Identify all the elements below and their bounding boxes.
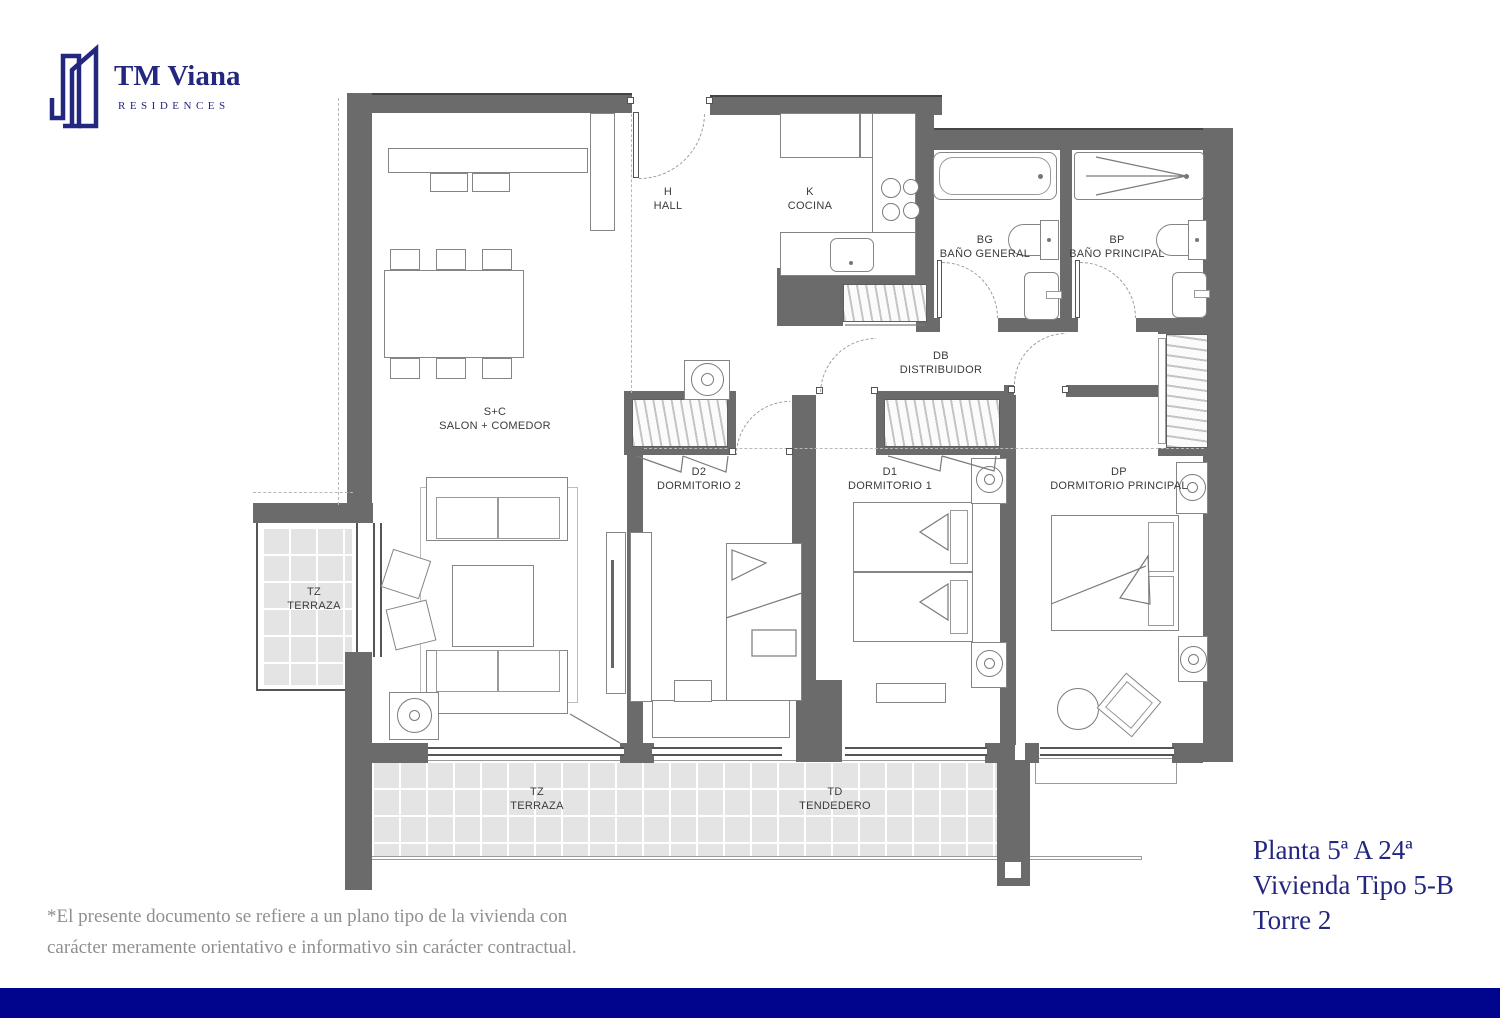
sofa-top-cushion-b xyxy=(498,497,560,539)
floor-plan-page: TM Viana RESIDENCES xyxy=(0,0,1500,1018)
room-code: BP xyxy=(1032,234,1202,248)
dining-chair xyxy=(482,358,512,379)
hall-closet xyxy=(843,284,927,322)
dp-round-table xyxy=(1057,688,1099,730)
room-code: TD xyxy=(750,786,920,800)
tall-cabinet xyxy=(590,113,615,231)
title-unit: Vivienda Tipo 5-B xyxy=(1253,868,1454,903)
bottom-right-notch xyxy=(1005,862,1021,878)
room-name: TENDEDERO xyxy=(750,800,920,814)
room-label-bano-principal: BP BAÑO PRINCIPAL xyxy=(1032,234,1202,261)
wall-dp-ward-cap-top xyxy=(1158,326,1208,334)
room-label-tendedero: TD TENDEDERO xyxy=(750,786,920,813)
d2-chair xyxy=(674,680,712,702)
entrance-jamb-right xyxy=(706,97,713,104)
room-label-dormitorio-principal: DP DORMITORIO PRINCIPAL xyxy=(1034,466,1204,493)
wall-dp-ward-cap-bot xyxy=(1158,448,1208,456)
room-name: BAÑO PRINCIPAL xyxy=(1032,248,1202,262)
room-code: D1 xyxy=(805,466,975,480)
corridor-dash xyxy=(644,448,1204,449)
dp-lamp-bot-inner xyxy=(1188,654,1199,665)
d2-desk xyxy=(652,700,790,738)
room-name: COCINA xyxy=(725,200,895,214)
room-name: SALON + COMEDOR xyxy=(410,420,580,434)
entrance-door-arc xyxy=(639,113,705,179)
room-label-terraza-bottom: TZ TERRAZA xyxy=(452,786,622,813)
dp-pillow-a xyxy=(1148,522,1174,572)
room-code: DB xyxy=(856,350,1026,364)
room-code: K xyxy=(725,186,895,200)
room-label-dormitorio-2: D2 DORMITORIO 2 xyxy=(614,466,784,493)
sofa-bottom-cushion-b xyxy=(498,650,560,692)
salon-lamp-inner xyxy=(409,710,420,721)
dp-chair xyxy=(1097,673,1162,738)
wall-d2-d1-base xyxy=(796,680,842,762)
tv-screen xyxy=(611,560,614,668)
d2-door-jamb-a xyxy=(729,448,736,455)
title-block: Planta 5ª A 24ª Vivienda Tipo 5-B Torre … xyxy=(1253,833,1454,938)
bg-sink-tap xyxy=(1046,291,1062,299)
kitchen-sink xyxy=(830,238,874,272)
d1-bench xyxy=(876,683,946,703)
wall-terrace-top xyxy=(253,503,373,523)
entrance-jamb-left xyxy=(627,97,634,104)
dining-chair xyxy=(482,249,512,270)
footer-bar xyxy=(0,988,1500,1018)
coffee-table xyxy=(452,565,534,647)
title-floor: Planta 5ª A 24ª xyxy=(1253,833,1454,868)
d1-pillow-pad-a xyxy=(950,510,968,564)
bp-sink-tap xyxy=(1194,290,1210,298)
sofa-bottom-cushion-a xyxy=(436,650,498,692)
wall-salon-sill-r xyxy=(620,743,654,763)
left-boundary-dash xyxy=(338,98,339,505)
dp-wardrobe xyxy=(1166,334,1208,448)
d2-shelf xyxy=(630,532,652,702)
room-label-cocina: K COCINA xyxy=(725,186,895,213)
dining-chair xyxy=(436,358,466,379)
washer-drum-inner xyxy=(701,373,714,386)
room-name: DISTRIBUIDOR xyxy=(856,364,1026,378)
room-label-salon-comedor: S+C SALON + COMEDOR xyxy=(410,406,580,433)
bg-door-arc xyxy=(942,262,998,318)
d2-wardrobe xyxy=(632,399,728,447)
disclaimer-text: *El presente documento se refiere a un p… xyxy=(47,901,577,963)
room-name: TERRAZA xyxy=(452,800,622,814)
d1-window xyxy=(845,747,987,756)
sideboard-stool-b xyxy=(472,173,510,192)
dining-chair xyxy=(390,249,420,270)
d1-lamp-top-inner xyxy=(984,474,995,485)
dining-chair xyxy=(390,358,420,379)
burner-4 xyxy=(903,202,920,219)
room-label-terraza-left: TZ TERRAZA xyxy=(229,586,399,613)
kitchen-counter-a xyxy=(780,113,860,158)
room-label-dormitorio-1: D1 DORMITORIO 1 xyxy=(805,466,975,493)
salon-window xyxy=(428,747,624,756)
sideboard-stool-a xyxy=(430,173,468,192)
wall-closet-cap xyxy=(843,276,927,284)
d1-wardrobe xyxy=(884,399,1000,447)
room-label-distribuidor: DB DISTRIBUIDOR xyxy=(856,350,1026,377)
wall-kitchen-bottom xyxy=(777,268,843,326)
title-tower: Torre 2 xyxy=(1253,903,1454,938)
room-code: TZ xyxy=(452,786,622,800)
d2-window xyxy=(652,747,782,756)
wall-dp-sill-r xyxy=(1172,743,1203,763)
dp-pillow-b xyxy=(1148,576,1174,626)
tv-unit xyxy=(606,532,626,694)
wall-dist-dp-b xyxy=(1066,385,1166,397)
sideboard xyxy=(388,148,588,173)
wall-salon-sill-l xyxy=(372,743,428,763)
bp-door-arc xyxy=(1080,262,1136,318)
dp-wardrobe-doors xyxy=(1158,338,1166,444)
d2-door-arc xyxy=(736,401,790,455)
wall-top-left xyxy=(350,93,632,113)
hall-salon-dash xyxy=(631,114,632,393)
room-name: DORMITORIO 1 xyxy=(805,480,975,494)
bg-tub-drain xyxy=(1038,174,1043,179)
bg-bathtub-inner xyxy=(939,157,1051,195)
wall-left-upper xyxy=(347,93,372,508)
dp-chair-seat xyxy=(1105,681,1153,729)
terrace-top-dash xyxy=(253,492,353,493)
room-code: TZ xyxy=(229,586,399,600)
dp-window xyxy=(1040,747,1174,756)
dp-door-jamb-a xyxy=(1008,386,1015,393)
wall-left-lower xyxy=(345,652,372,890)
room-code: S+C xyxy=(410,406,580,420)
sofa-top-cushion-a xyxy=(436,497,498,539)
room-code: D2 xyxy=(614,466,784,480)
d1-lamp-bot-inner xyxy=(984,658,995,669)
dining-chair xyxy=(436,249,466,270)
dining-table xyxy=(384,270,524,358)
dp-door-jamb-b xyxy=(1062,386,1069,393)
room-code: DP xyxy=(1034,466,1204,480)
burner-2 xyxy=(903,179,919,195)
wall-bath-top xyxy=(926,128,1216,150)
room-name: DORMITORIO PRINCIPAL xyxy=(1034,480,1204,494)
room-name: TERRAZA xyxy=(229,600,399,614)
dp-window-ledge xyxy=(1035,758,1177,784)
bp-shower-drain xyxy=(1184,174,1189,179)
wall-top-right xyxy=(710,95,942,115)
sink-drain-dot xyxy=(849,261,853,265)
room-name: DORMITORIO 2 xyxy=(614,480,784,494)
d2-bed xyxy=(726,543,802,701)
d1-pillow-pad-b xyxy=(950,580,968,634)
